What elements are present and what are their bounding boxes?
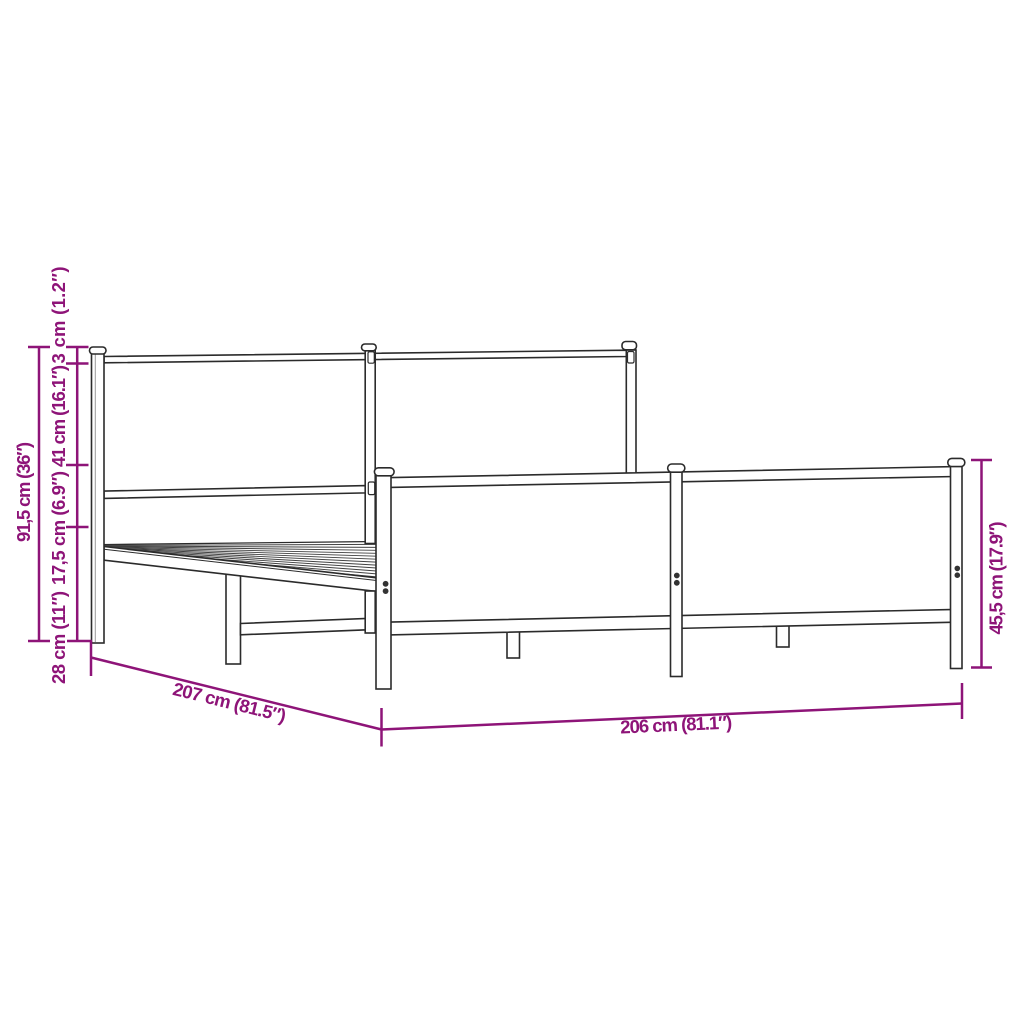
svg-text:41 cm (16.1″): 41 cm (16.1″) [48,365,69,467]
svg-text:3 cm (1.2″): 3 cm (1.2″) [48,267,69,364]
svg-text:28 cm (11″): 28 cm (11″) [48,591,69,684]
svg-text:17,5 cm (6.9″): 17,5 cm (6.9″) [48,471,69,585]
svg-text:45,5 cm (17.9″): 45,5 cm (17.9″) [986,522,1007,635]
svg-text:91,5 cm (36″): 91,5 cm (36″) [13,442,34,542]
